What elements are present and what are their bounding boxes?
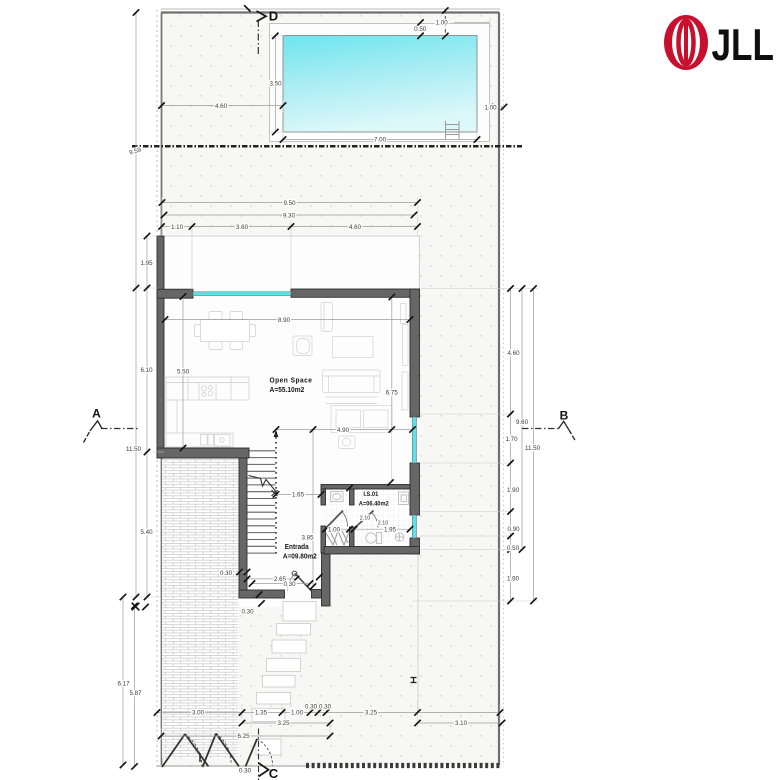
svg-text:1.65: 1.65 xyxy=(292,492,305,499)
svg-text:0.50: 0.50 xyxy=(414,26,427,33)
svg-text:0.90: 0.90 xyxy=(507,526,520,533)
svg-text:1.70: 1.70 xyxy=(505,436,518,443)
svg-text:A=06.40m2: A=06.40m2 xyxy=(359,501,390,507)
svg-text:9.60: 9.60 xyxy=(516,419,529,426)
svg-text:4.60: 4.60 xyxy=(507,350,520,357)
svg-text:3.25: 3.25 xyxy=(365,710,378,717)
svg-text:B: B xyxy=(560,409,569,423)
svg-text:I.S.01: I.S.01 xyxy=(363,492,379,498)
svg-text:0.30: 0.30 xyxy=(305,704,318,711)
svg-text:3.50: 3.50 xyxy=(269,81,282,88)
svg-text:1.95: 1.95 xyxy=(384,526,397,533)
svg-text:D: D xyxy=(269,9,278,24)
svg-text:3.25: 3.25 xyxy=(277,720,290,727)
svg-text:1.10: 1.10 xyxy=(171,224,184,231)
svg-text:6.17: 6.17 xyxy=(117,680,130,687)
svg-text:4.60: 4.60 xyxy=(349,224,362,231)
svg-text:6.75: 6.75 xyxy=(386,389,399,396)
svg-text:A=55.10m2: A=55.10m2 xyxy=(270,387,305,394)
svg-text:11.50: 11.50 xyxy=(126,446,142,453)
svg-text:2.10: 2.10 xyxy=(360,516,371,522)
svg-text:7.00: 7.00 xyxy=(374,137,387,144)
svg-text:3.10: 3.10 xyxy=(455,720,468,727)
svg-text:C: C xyxy=(269,766,279,780)
svg-text:A: A xyxy=(92,407,101,421)
svg-text:5.50: 5.50 xyxy=(177,368,190,375)
svg-text:4.60: 4.60 xyxy=(215,103,228,110)
svg-text:11.50: 11.50 xyxy=(525,445,541,452)
svg-text:8.90: 8.90 xyxy=(278,317,291,324)
svg-text:3.60: 3.60 xyxy=(236,224,249,231)
svg-text:1.00: 1.00 xyxy=(484,104,497,111)
svg-text:4.90: 4.90 xyxy=(337,427,350,434)
svg-text:5.87: 5.87 xyxy=(129,690,142,697)
svg-text:0.30: 0.30 xyxy=(239,767,252,774)
svg-text:0.50: 0.50 xyxy=(507,545,520,552)
svg-text:0.30: 0.30 xyxy=(220,570,233,577)
svg-text:5.40: 5.40 xyxy=(140,529,153,536)
svg-text:1.95: 1.95 xyxy=(140,260,153,267)
svg-text:1.90: 1.90 xyxy=(507,575,520,582)
svg-text:A=09.80m2: A=09.80m2 xyxy=(283,553,317,560)
svg-text:1.00: 1.00 xyxy=(328,526,341,533)
svg-text:3.00: 3.00 xyxy=(192,710,205,717)
svg-text:0.30: 0.30 xyxy=(283,581,296,588)
svg-text:Open Space: Open Space xyxy=(270,377,313,384)
svg-text:1.00: 1.00 xyxy=(436,20,449,27)
svg-text:JLL: JLL xyxy=(712,21,774,70)
svg-text:Entrada: Entrada xyxy=(285,544,309,551)
svg-text:1.90: 1.90 xyxy=(507,487,520,494)
svg-text:9.50: 9.50 xyxy=(283,200,296,207)
svg-text:2.10: 2.10 xyxy=(378,521,389,527)
svg-text:6.25: 6.25 xyxy=(237,733,250,740)
svg-text:6.10: 6.10 xyxy=(140,367,153,374)
svg-text:9.30: 9.30 xyxy=(283,212,296,219)
svg-text:0.30: 0.30 xyxy=(319,704,332,711)
svg-text:1.00: 1.00 xyxy=(291,710,304,717)
svg-text:0.30: 0.30 xyxy=(241,608,254,615)
svg-text:3.85: 3.85 xyxy=(301,535,314,542)
svg-text:1.35: 1.35 xyxy=(255,710,268,717)
